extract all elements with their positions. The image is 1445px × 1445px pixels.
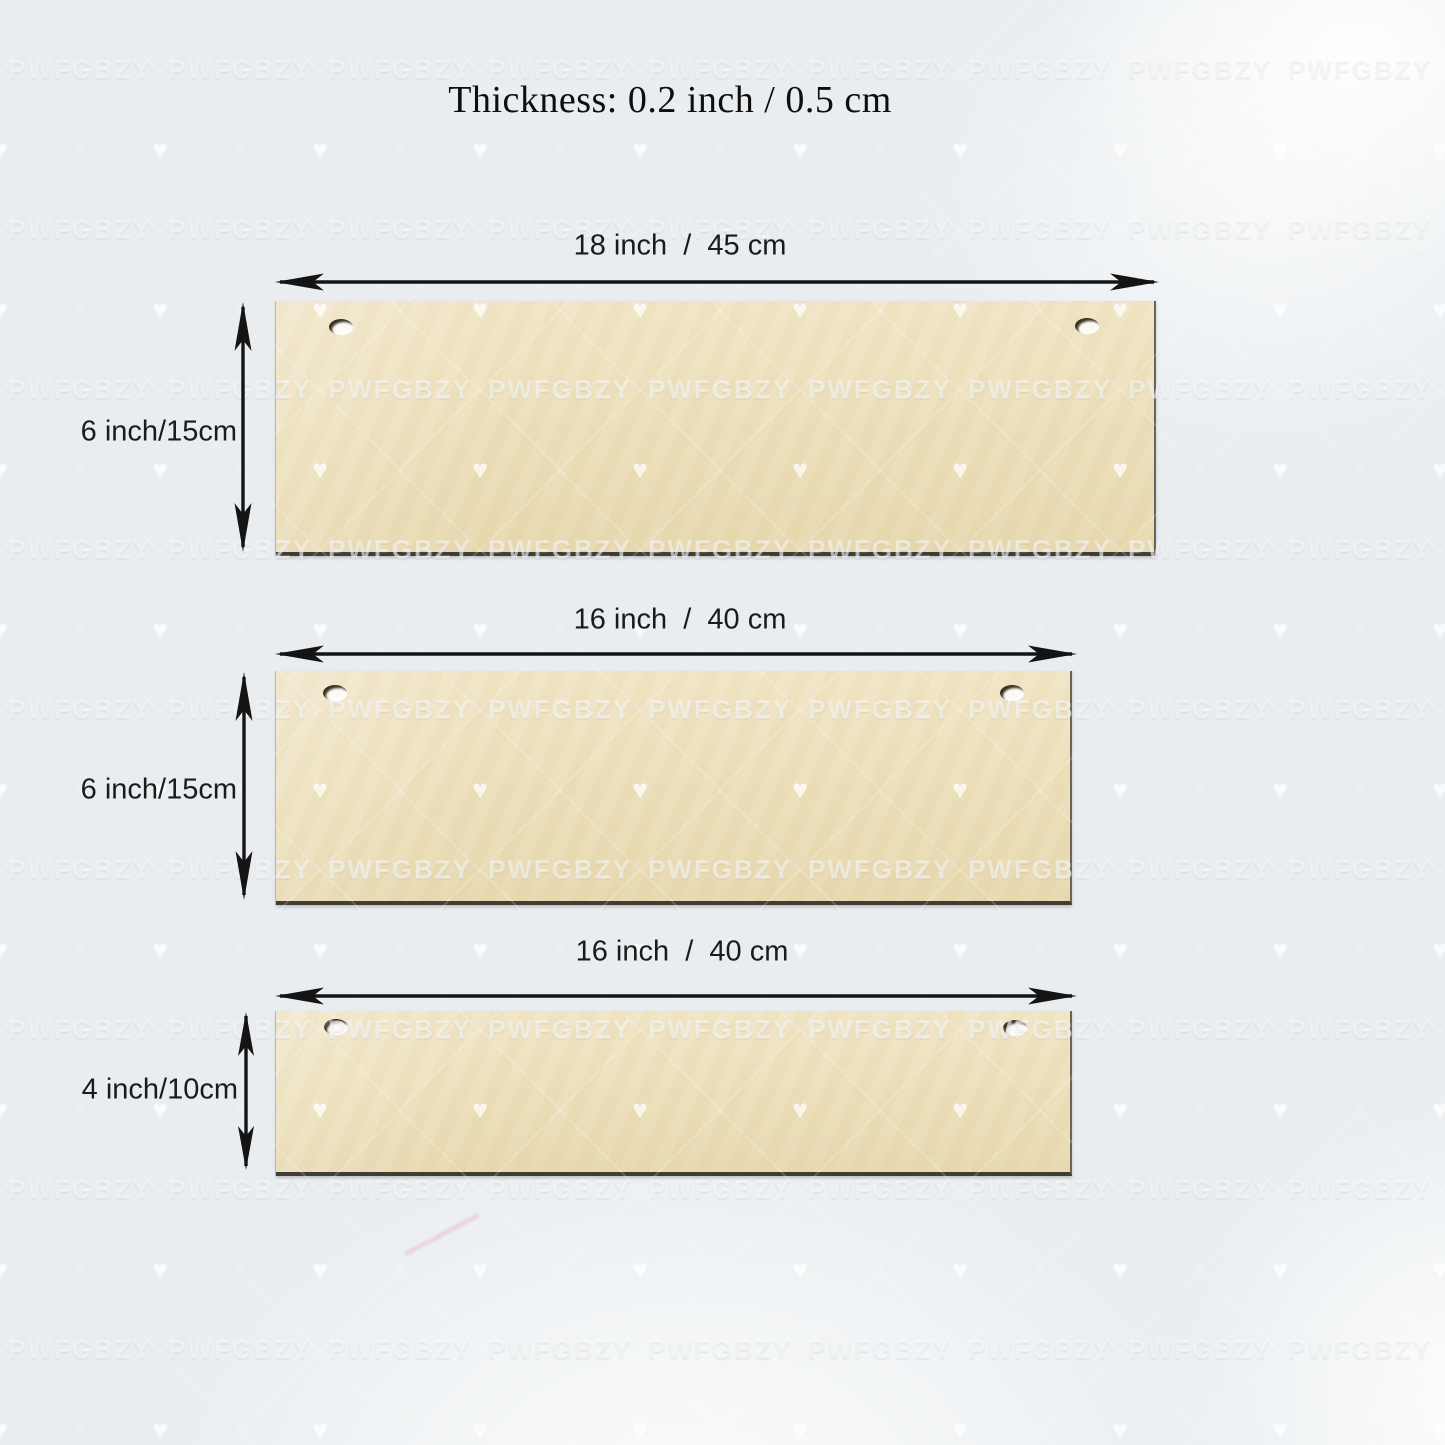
diamond-outline (878, 0, 1042, 72)
diamond-outline (0, 0, 82, 72)
diamond-outline (238, 0, 402, 72)
watermark-text: PWFGBZY (8, 55, 152, 86)
heart-icon: ♥ (152, 137, 168, 164)
heart-icon: ♥ (152, 937, 168, 964)
watermark-text: PWFGBZY (8, 1175, 152, 1206)
watermark-text: PWFGBZY (168, 55, 312, 86)
heart-icon: ♥ (1272, 1257, 1288, 1284)
diamond-outline (1198, 1028, 1362, 1192)
watermark-text: PWFGBZY (968, 215, 1112, 246)
watermark-text: PWFGBZY (968, 55, 1112, 86)
wood-plank (276, 671, 1072, 905)
heart-icon: ♥ (952, 617, 968, 644)
heart-icon: ♥ (472, 137, 488, 164)
hanging-hole-left (324, 1019, 348, 1035)
hanging-hole-right (1000, 685, 1024, 701)
watermark-text: PWFGBZY (1128, 215, 1272, 246)
watermark-text: PWFGBZY (1128, 1015, 1272, 1046)
thickness-title: Thickness: 0.2 inch / 0.5 cm (448, 78, 892, 122)
heart-icon: ♥ (1432, 1257, 1445, 1284)
hanging-hole-right (1003, 1020, 1027, 1036)
diamond-outline (78, 548, 242, 712)
watermark-text: PWFGBZY (1288, 1335, 1432, 1366)
heart-icon: ♥ (632, 0, 648, 4)
height-dimension-label: 6 inch/15cm (81, 774, 237, 807)
watermark-text: PWFGBZY (8, 1015, 152, 1046)
diamond-outline (558, 1188, 722, 1352)
watermark-text: PWFGBZY (168, 1335, 312, 1366)
heart-icon: ♥ (1272, 1097, 1288, 1124)
heart-icon: ♥ (0, 1097, 8, 1124)
heart-icon: ♥ (1272, 1417, 1288, 1444)
watermark-text: PWFGBZY (1128, 1335, 1272, 1366)
hanging-hole-right (1075, 318, 1099, 334)
diamond-outline (1198, 708, 1362, 872)
heart-icon: ♥ (152, 297, 168, 324)
diamond-outline (1358, 0, 1445, 72)
heart-icon: ♥ (1432, 1097, 1445, 1124)
watermark-text: PWFGBZY (8, 695, 152, 726)
diamond-outline (1198, 868, 1362, 1032)
heart-icon: ♥ (1112, 137, 1128, 164)
heart-icon: ♥ (0, 777, 8, 804)
diamond-outline (78, 68, 242, 232)
diamond-outline (0, 228, 82, 392)
horizontal-dimension-arrow (274, 642, 1078, 666)
diamond-outline (398, 1348, 562, 1445)
heart-icon: ♥ (792, 617, 808, 644)
watermark-text: PWFGBZY (8, 375, 152, 406)
diamond-outline (238, 68, 402, 232)
watermark-text: PWFGBZY (168, 1175, 312, 1206)
heart-icon: ♥ (792, 1417, 808, 1444)
diamond-outline (1038, 0, 1202, 72)
heart-icon: ♥ (312, 0, 328, 4)
diamond-outline (718, 0, 882, 72)
watermark-text: PWFGBZY (8, 855, 152, 886)
diamond-outline (1198, 388, 1362, 552)
heart-icon: ♥ (472, 617, 488, 644)
diamond-outline (0, 868, 82, 1032)
diamond-outline (1358, 1188, 1445, 1352)
diamond-outline (718, 1188, 882, 1352)
watermark-text: PWFGBZY (808, 1335, 952, 1366)
heart-icon: ♥ (952, 1417, 968, 1444)
watermark-text: PWFGBZY (968, 1175, 1112, 1206)
heart-icon: ♥ (952, 1257, 968, 1284)
heart-icon: ♥ (1432, 617, 1445, 644)
heart-icon: ♥ (312, 937, 328, 964)
watermark-text: PWFGBZY (1288, 1175, 1432, 1206)
heart-icon: ♥ (1432, 457, 1445, 484)
heart-icon: ♥ (1272, 457, 1288, 484)
heart-icon: ♥ (1112, 617, 1128, 644)
heart-icon: ♥ (152, 0, 168, 4)
watermark-text: PWFGBZY (1288, 855, 1432, 886)
watermark-text: PWFGBZY (648, 1175, 792, 1206)
diamond-outline (1198, 1188, 1362, 1352)
watermark-text: PWFGBZY (1288, 1015, 1432, 1046)
heart-icon: ♥ (1112, 937, 1128, 964)
diamond-outline (78, 388, 242, 552)
width-dimension-label: 18 inch / 45 cm (574, 230, 787, 263)
diamond-outline (1198, 228, 1362, 392)
heart-icon: ♥ (1112, 1097, 1128, 1124)
heart-icon: ♥ (1272, 937, 1288, 964)
watermark-text: PWFGBZY (488, 1175, 632, 1206)
heart-icon: ♥ (0, 137, 8, 164)
diamond-outline (1358, 708, 1445, 872)
heart-icon: ♥ (1432, 937, 1445, 964)
wood-plank (276, 1011, 1072, 1176)
diamond-outline (878, 1188, 1042, 1352)
watermark-text: PWFGBZY (8, 535, 152, 566)
heart-icon: ♥ (632, 1257, 648, 1284)
height-dimension-label: 4 inch/10cm (82, 1074, 238, 1107)
heart-icon: ♥ (792, 137, 808, 164)
diamond-outline (1358, 868, 1445, 1032)
diamond-outline (398, 1188, 562, 1352)
watermark-text: PWFGBZY (328, 1175, 472, 1206)
scratch-mark (404, 1213, 481, 1257)
heart-icon: ♥ (1112, 1417, 1128, 1444)
watermark-text: PWFGBZY (1128, 1175, 1272, 1206)
diamond-outline (0, 1028, 82, 1192)
watermark-text: PWFGBZY (1288, 55, 1432, 86)
heart-icon: ♥ (792, 1257, 808, 1284)
heart-icon: ♥ (0, 1417, 8, 1444)
heart-icon: ♥ (632, 137, 648, 164)
heart-icon: ♥ (472, 1257, 488, 1284)
heart-icon: ♥ (312, 617, 328, 644)
heart-icon: ♥ (472, 1417, 488, 1444)
diamond-outline (1358, 1028, 1445, 1192)
diamond-outline (878, 1348, 1042, 1445)
heart-icon: ♥ (952, 0, 968, 4)
diamond-outline (1198, 68, 1362, 232)
diamond-outline (1358, 1348, 1445, 1445)
diamond-outline (0, 1348, 82, 1445)
heart-icon: ♥ (312, 1257, 328, 1284)
watermark-text: PWFGBZY (1288, 375, 1432, 406)
heart-icon: ♥ (0, 617, 8, 644)
heart-icon: ♥ (1272, 617, 1288, 644)
watermark-text: PWFGBZY (1128, 55, 1272, 86)
watermark-text: PWFGBZY (1288, 215, 1432, 246)
heart-icon: ♥ (0, 0, 8, 4)
watermark-text: PWFGBZY (328, 1335, 472, 1366)
width-dimension-label: 16 inch / 40 cm (576, 936, 789, 969)
diamond-outline (398, 0, 562, 72)
heart-icon: ♥ (312, 137, 328, 164)
heart-icon: ♥ (1272, 777, 1288, 804)
watermark-text: PWFGBZY (168, 215, 312, 246)
heart-icon: ♥ (152, 617, 168, 644)
diamond-outline (0, 548, 82, 712)
watermark-text: PWFGBZY (808, 215, 952, 246)
diamond-outline (1358, 228, 1445, 392)
diamond-outline (0, 708, 82, 872)
diamond-outline (558, 1348, 722, 1445)
watermark-text: PWFGBZY (1288, 695, 1432, 726)
diamond-outline (78, 868, 242, 1032)
heart-icon: ♥ (1432, 1417, 1445, 1444)
heart-icon: ♥ (0, 937, 8, 964)
heart-icon: ♥ (472, 937, 488, 964)
heart-icon: ♥ (952, 937, 968, 964)
diamond-outline (1358, 68, 1445, 232)
diamond-outline (0, 68, 82, 232)
heart-icon: ♥ (312, 1417, 328, 1444)
hanging-hole-left (329, 319, 353, 335)
wood-plank (276, 301, 1156, 556)
heart-icon: ♥ (1112, 0, 1128, 4)
heart-icon: ♥ (1432, 137, 1445, 164)
diamond-outline (1358, 548, 1445, 712)
diamond-outline (718, 1348, 882, 1445)
diamond-outline (558, 0, 722, 72)
heart-icon: ♥ (1112, 777, 1128, 804)
diamond-outline (78, 228, 242, 392)
diamond-outline (78, 1188, 242, 1352)
horizontal-dimension-arrow (274, 270, 1160, 294)
heart-icon: ♥ (1272, 0, 1288, 4)
watermark-text: PWFGBZY (1128, 855, 1272, 886)
heart-icon: ♥ (0, 1257, 8, 1284)
watermark-text: PWFGBZY (8, 215, 152, 246)
diamond-outline (1038, 1348, 1202, 1445)
diamond-outline (0, 388, 82, 552)
diamond-outline (78, 1028, 242, 1192)
diamond-outline (1358, 388, 1445, 552)
heart-icon: ♥ (1112, 1257, 1128, 1284)
watermark-text: PWFGBZY (648, 1335, 792, 1366)
watermark-text: PWFGBZY (488, 1335, 632, 1366)
hanging-hole-left (323, 685, 347, 701)
diamond-outline (238, 1348, 402, 1445)
heart-icon: ♥ (152, 457, 168, 484)
diamond-outline (1038, 1188, 1202, 1352)
heart-icon: ♥ (152, 1257, 168, 1284)
diamond-outline (1198, 548, 1362, 712)
diamond-outline (1038, 68, 1202, 232)
heart-icon: ♥ (0, 297, 8, 324)
heart-icon: ♥ (472, 0, 488, 4)
diamond-outline (238, 1188, 402, 1352)
diamond-outline (78, 0, 242, 72)
heart-icon: ♥ (152, 1417, 168, 1444)
watermark-text: PWFGBZY (968, 1335, 1112, 1366)
heart-icon: ♥ (792, 937, 808, 964)
watermark-text: PWFGBZY (1288, 535, 1432, 566)
watermark-text: PWFGBZY (328, 215, 472, 246)
diamond-outline (1198, 0, 1362, 72)
diamond-outline (1198, 1348, 1362, 1445)
watermark-text: PWFGBZY (8, 1335, 152, 1366)
heart-icon: ♥ (1432, 297, 1445, 324)
horizontal-dimension-arrow (274, 984, 1078, 1008)
watermark-text: PWFGBZY (1128, 695, 1272, 726)
heart-icon: ♥ (1432, 777, 1445, 804)
heart-icon: ♥ (1272, 137, 1288, 164)
heart-icon: ♥ (1272, 297, 1288, 324)
heart-icon: ♥ (632, 1417, 648, 1444)
diamond-outline (78, 1348, 242, 1445)
product-diagram: Thickness: 0.2 inch / 0.5 cm 18 inch / 4… (0, 0, 1445, 1445)
diamond-outline (0, 1188, 82, 1352)
height-dimension-label: 6 inch/15cm (81, 416, 237, 449)
diamond-outline (878, 68, 1042, 232)
heart-icon: ♥ (792, 0, 808, 4)
heart-icon: ♥ (1432, 0, 1445, 4)
watermark-text: PWFGBZY (808, 1175, 952, 1206)
width-dimension-label: 16 inch / 40 cm (574, 604, 787, 637)
heart-icon: ♥ (0, 457, 8, 484)
heart-icon: ♥ (952, 137, 968, 164)
